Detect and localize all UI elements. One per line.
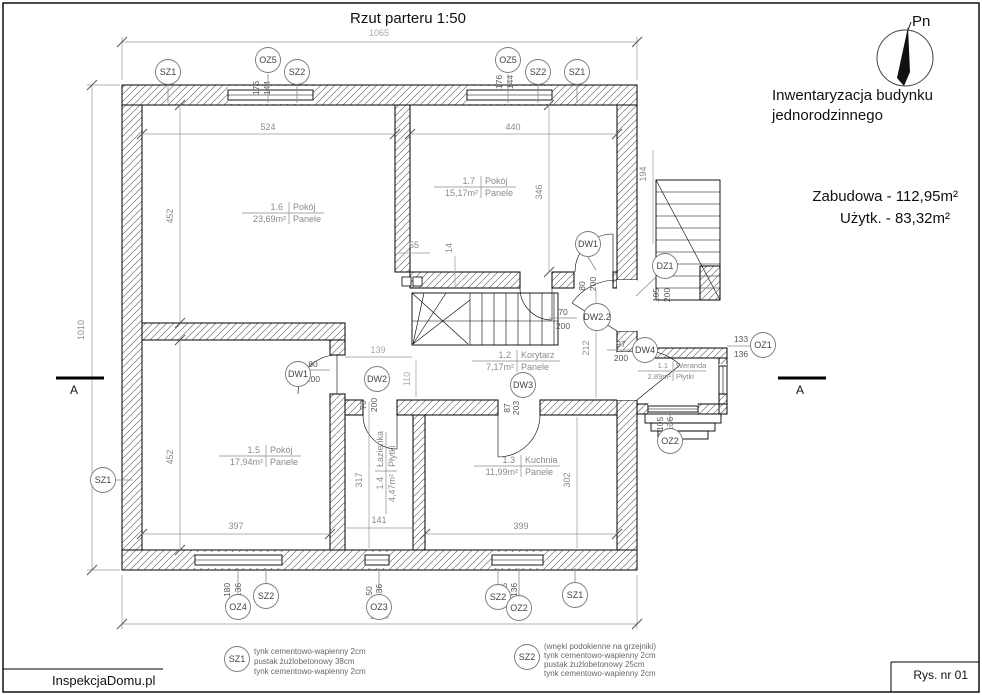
dim-r16-w: 524	[260, 122, 275, 132]
tag-dw4: DW4	[633, 338, 658, 363]
svg-text:Pokój: Pokój	[485, 176, 508, 186]
dim-r17-w: 440	[505, 122, 520, 132]
svg-text:Weranda: Weranda	[676, 361, 707, 370]
svg-text:1.5: 1.5	[247, 445, 260, 455]
tag-sz1-top-left: SZ1	[156, 60, 181, 85]
built-area: Zabudowa - 112,95m²	[812, 188, 958, 205]
oz5-size-h: 144	[262, 81, 272, 95]
svg-text:OZ1: OZ1	[754, 340, 772, 350]
svg-text:SZ1: SZ1	[569, 67, 586, 77]
svg-text:Pokój: Pokój	[293, 202, 316, 212]
drawing-number: Rys. nr 01	[913, 668, 968, 682]
usable-area: Użytk. - 83,32m²	[840, 210, 950, 227]
svg-text:1.3: 1.3	[502, 455, 515, 465]
tag-dz1: DZ1	[653, 254, 678, 279]
dw2-size-w: 70	[358, 400, 368, 410]
oz5b-size-h: 144	[505, 75, 515, 89]
legend-sz2-line0: (wnęki podokienne na grzejniki)	[544, 642, 656, 651]
svg-text:Korytarz: Korytarz	[521, 350, 555, 360]
tag-oz5-mid: OZ5	[496, 48, 521, 73]
svg-text:SZ2: SZ2	[258, 591, 275, 601]
svg-text:Panele: Panele	[525, 467, 553, 477]
svg-text:SZ2: SZ2	[519, 652, 536, 662]
dim-r15-w: 397	[228, 521, 243, 531]
svg-text:OZ3: OZ3	[370, 602, 388, 612]
svg-text:SZ2: SZ2	[530, 67, 547, 77]
svg-text:DW3: DW3	[513, 380, 533, 390]
dw4-size-h: 200	[614, 353, 628, 363]
tag-dw1-west: DW1	[286, 362, 311, 387]
tag-sz2-top-mid: SZ2	[526, 60, 551, 85]
oz2r-size-w: 105	[655, 417, 665, 431]
svg-text:1.1: 1.1	[658, 361, 668, 370]
svg-text:DW2: DW2	[367, 374, 387, 384]
svg-text:Kuchnia: Kuchnia	[525, 455, 558, 465]
svg-text:Panele: Panele	[485, 188, 513, 198]
tag-dw3: DW3	[511, 373, 536, 398]
tag-dw22: DW2.2	[583, 304, 611, 331]
tag-sz1-left: SZ1	[91, 468, 116, 493]
svg-text:OZ2: OZ2	[510, 603, 528, 613]
legend-sz1-line2: pustak żużlobetonowy 38cm	[254, 657, 355, 666]
dim-r14-w: 141	[371, 515, 386, 525]
dw4-size-w: 97	[616, 339, 626, 349]
compass-label: Pn	[912, 13, 930, 30]
svg-text:DW1: DW1	[578, 239, 598, 249]
svg-text:4,47m²: 4,47m²	[387, 474, 397, 502]
dim-r13-w: 399	[513, 521, 528, 531]
dw22-size-w: 70	[558, 307, 568, 317]
page-title: Rzut parteru 1:50	[350, 10, 466, 27]
tag-oz5-left: OZ5	[256, 48, 281, 73]
svg-text:Panele: Panele	[521, 362, 549, 372]
oz5-size-w: 176	[251, 81, 261, 95]
tag-oz3: OZ3	[367, 595, 392, 620]
brand-text: InspekcjaDomu.pl	[52, 673, 155, 688]
svg-text:1.2: 1.2	[498, 350, 511, 360]
svg-text:7,17m²: 7,17m²	[486, 362, 514, 372]
dim-overall-left: 1010	[76, 320, 86, 340]
dim-r15-h: 452	[165, 449, 175, 464]
tag-oz4: OZ4	[226, 595, 251, 620]
dw1e-size-h: 200	[588, 277, 598, 291]
tag-dw2: DW2	[365, 367, 390, 392]
tag-oz2-right: OZ2	[658, 429, 683, 454]
dim-r16-h: 452	[165, 208, 175, 223]
tag-dw1-east: DW1	[576, 232, 601, 257]
section-mark-left: A	[70, 383, 78, 397]
dw1e-size-w: 80	[577, 281, 587, 291]
chimney-flue	[413, 277, 422, 286]
dim-stair-o: 14	[444, 243, 454, 253]
svg-text:Płytki: Płytki	[387, 445, 397, 467]
svg-text:SZ1: SZ1	[229, 654, 246, 664]
svg-text:1.4: 1.4	[375, 477, 385, 490]
tag-sz1-top-right: SZ1	[565, 60, 590, 85]
svg-text:17,94m²: 17,94m²	[230, 457, 263, 467]
svg-text:Pokój: Pokój	[270, 445, 293, 455]
svg-text:11,99m²: 11,99m²	[486, 467, 518, 477]
dim-hall-h: 212	[581, 340, 591, 355]
dim-stair-w: 55	[409, 240, 419, 250]
dw1w-size-w: 80	[308, 359, 318, 369]
svg-text:OZ2: OZ2	[661, 436, 679, 446]
oz5b-size-w: 176	[494, 75, 504, 89]
svg-text:OZ5: OZ5	[499, 55, 517, 65]
svg-text:15,17m²: 15,17m²	[445, 188, 478, 198]
dz1-size-w: 105	[651, 288, 661, 302]
dim-corr-h: 110	[402, 372, 412, 386]
legend-sz2-line2: pustak żużlobetonowy 25cm	[544, 660, 645, 669]
oz3-size-w: 50	[364, 586, 374, 596]
svg-text:SZ1: SZ1	[95, 475, 112, 485]
svg-text:SZ2: SZ2	[490, 592, 507, 602]
legend-sz2-line1: tynk cementowo-wapienny 2cm	[544, 651, 656, 660]
svg-text:DW2.2: DW2.2	[583, 312, 611, 322]
svg-text:SZ2: SZ2	[289, 67, 306, 77]
section-mark-right: A	[796, 383, 804, 397]
info-line1: Inwentaryzacja budynku	[772, 87, 933, 104]
svg-text:2,89m²: 2,89m²	[648, 372, 672, 381]
tag-oz2-bottom: OZ2	[507, 596, 532, 621]
svg-text:23,69m²: 23,69m²	[253, 214, 286, 224]
tag-sz1-bottom: SZ1	[563, 583, 588, 608]
dw3-size-h: 203	[511, 401, 521, 415]
svg-text:OZ5: OZ5	[259, 55, 277, 65]
svg-text:DZ1: DZ1	[656, 261, 673, 271]
svg-text:OZ4: OZ4	[229, 602, 247, 612]
dw22-size-h: 200	[556, 321, 570, 331]
dw2-size-h: 200	[369, 398, 379, 412]
tag-sz2-top-left: SZ2	[285, 60, 310, 85]
svg-text:SZ1: SZ1	[160, 67, 177, 77]
tag-oz1: OZ1	[751, 333, 776, 358]
svg-text:DW4: DW4	[635, 345, 655, 355]
dim-r17-h: 346	[534, 184, 544, 199]
legend-sz2: SZ2	[515, 645, 540, 670]
legend-sz1-line1: tynk cementowo-wapienny 2cm	[254, 647, 366, 656]
svg-text:Panele: Panele	[293, 214, 321, 224]
oz1-size-w: 133	[734, 334, 748, 344]
dim-corr-w: 139	[370, 345, 385, 355]
svg-text:Płytki: Płytki	[676, 372, 694, 381]
legend-sz2-line3: tynk cementowo-wapienny 2cm	[544, 669, 656, 678]
tag-sz2-bottom-left: SZ2	[254, 584, 279, 609]
dim-overall-top: 1065	[369, 28, 389, 38]
svg-text:1.7: 1.7	[462, 176, 475, 186]
chimney-flue	[402, 277, 411, 286]
floor-plan-drawing: Rzut parteru 1:50 Pn Inwentaryzacja budy…	[0, 0, 982, 695]
svg-text:DW1: DW1	[288, 369, 308, 379]
svg-text:1.6: 1.6	[270, 202, 283, 212]
dim-r13-h: 302	[562, 472, 572, 487]
legend-sz1: SZ1	[225, 647, 250, 672]
oz1-size-h: 136	[734, 349, 748, 359]
svg-text:Łazienka: Łazienka	[375, 431, 385, 467]
legend-sz1-line3: tynk cementowo-wapienny 2cm	[254, 667, 366, 676]
info-line2: jednorodzinnego	[771, 107, 883, 124]
dim-r14-h: 317	[354, 472, 364, 487]
dim-ext-stairs: 194	[638, 166, 648, 181]
dz1-size-h: 200	[662, 288, 672, 302]
svg-text:Panele: Panele	[270, 457, 298, 467]
oz4-size-w: 180	[222, 583, 232, 597]
svg-text:SZ1: SZ1	[567, 590, 584, 600]
